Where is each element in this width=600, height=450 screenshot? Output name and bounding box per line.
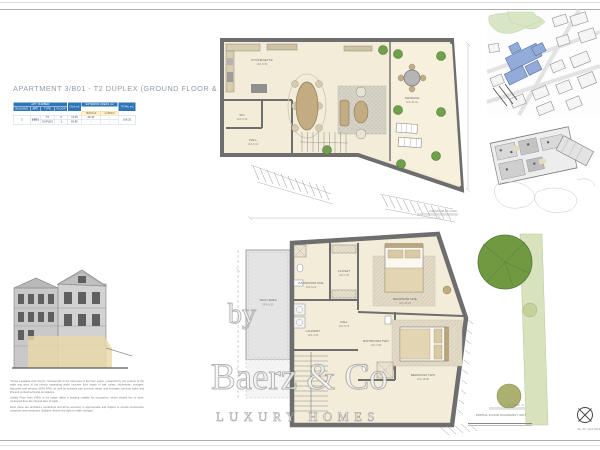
landscaping (478, 234, 548, 425)
building-elevation (4, 268, 132, 376)
cell-floor: -1 (55, 120, 68, 125)
cell-total: 166.25 (118, 115, 136, 124)
room-area: LFA 15.40 (399, 301, 412, 305)
room-area: LFA 5.20 (306, 285, 317, 289)
occupancy-note: PARTIAL FLOOR OCCUPANCY UNIT (466, 414, 536, 420)
occupancy-underline (468, 423, 532, 424)
room-area: LFA 7.25 (339, 273, 350, 277)
duplex-highlight (28, 336, 112, 368)
room-area: LFA 2.40 (237, 117, 248, 121)
disclaimer-block: *Gross Leasable Area (GLA): corresponds … (10, 380, 150, 450)
cell-garden: - (101, 120, 119, 125)
cell-building: 3 (13, 115, 30, 124)
dining-set (288, 74, 326, 138)
shrub (523, 303, 537, 317)
areas-table: APT. NUMBER GLA m2 EXTERIOR AREAS m2 TOT… (13, 102, 139, 140)
occupancy-underline-2 (468, 425, 532, 426)
room-area: LFA 3.10 (308, 333, 319, 337)
room-area: LFA 8.35 (257, 62, 268, 66)
room-label: CLOSET (338, 269, 350, 273)
north-compass-icon (574, 404, 596, 426)
room-area: LFA 26.40 (406, 100, 419, 104)
room-label: KITCHENETTE (251, 58, 273, 62)
room-area: LFA 16.80 (417, 377, 430, 381)
site-plan-map (487, 122, 597, 218)
site-plan-context (494, 179, 595, 213)
room-label: BEDROOM TWO (411, 373, 436, 377)
room-label: HALL (249, 138, 257, 142)
disclaimer-ufa: Usable Floor Area (UFA) is the space wit… (10, 397, 144, 404)
room-label: BATHROOM ONE (298, 281, 323, 285)
room-label: BATHROOM TWO (363, 339, 389, 343)
room-area: LFA 6.10 (248, 142, 259, 146)
table-col-total: TOTAL m2 (118, 102, 136, 111)
disclaimer-gla: *Gross Leasable Area (GLA): corresponds … (10, 380, 144, 395)
room-label: HALL (340, 320, 348, 324)
room-area: LFA 5.75 (339, 324, 350, 328)
room-area: GFA 9.35 (262, 303, 274, 307)
watermark-brand: Baerz & Co (211, 356, 388, 399)
svg-text:GROUND FLOOR: GROUND FLOOR (429, 209, 457, 213)
cell-apt: 3/B01 (30, 115, 40, 124)
table-col-gla: GLA m2 (68, 102, 82, 111)
room-area: LFA 4.65 (371, 343, 382, 347)
cell-terrace: - (81, 120, 100, 125)
ground-floor-plan: KITCHENETTE LFA 8.35 WC LFA 2.40 HALL LF… (215, 28, 480, 228)
drawing-sheet: APARTMENT 3/B01 - T2 DUPLEX (GROUND FLOO… (0, 0, 600, 450)
frame-line-top-outer (0, 2, 600, 3)
room-label: BEDROOM ONE (393, 297, 417, 301)
watermark-tagline: LUXURY HOMES (216, 410, 380, 425)
bedroom-two-furniture (386, 320, 462, 372)
floor-minus1-plan: TECH AREA GFA 9.35 (225, 228, 555, 435)
location-map (487, 10, 600, 115)
room-label: TECH AREA (259, 298, 277, 302)
ground-floor-caption: GROUND FLOOR (417, 209, 458, 216)
room-label: TERRACE (405, 96, 420, 100)
site-plan-cluster (490, 127, 577, 185)
table-group-exterior: EXTERIOR AREAS m2 (81, 102, 118, 107)
disclaimer-accuracy: Floor plans are architect's renderings a… (10, 406, 144, 413)
cell-gla: 65.80 (68, 120, 82, 125)
elevation-building (12, 270, 132, 368)
svg-text:FLOOR -1: FLOOR -1 (508, 403, 524, 407)
cell-type: DUPLEX (40, 120, 55, 125)
room-label: LAUNDRY (306, 329, 321, 333)
room-label: WC (239, 113, 245, 117)
version-note: Ver. 00 - April 2024 (552, 428, 600, 434)
watermark-by: by (228, 299, 256, 331)
